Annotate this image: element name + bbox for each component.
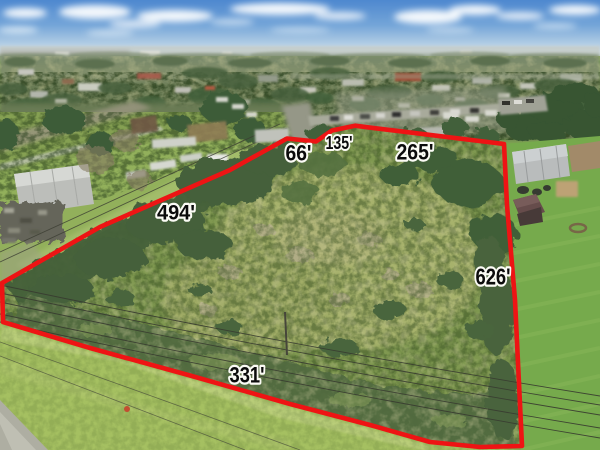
svg-text:66': 66'	[286, 141, 312, 166]
svg-text:265': 265'	[397, 140, 434, 165]
svg-text:494': 494'	[157, 200, 195, 225]
svg-text:135': 135'	[326, 133, 353, 153]
svg-text:331': 331'	[230, 363, 265, 388]
svg-text:626': 626'	[476, 264, 511, 290]
